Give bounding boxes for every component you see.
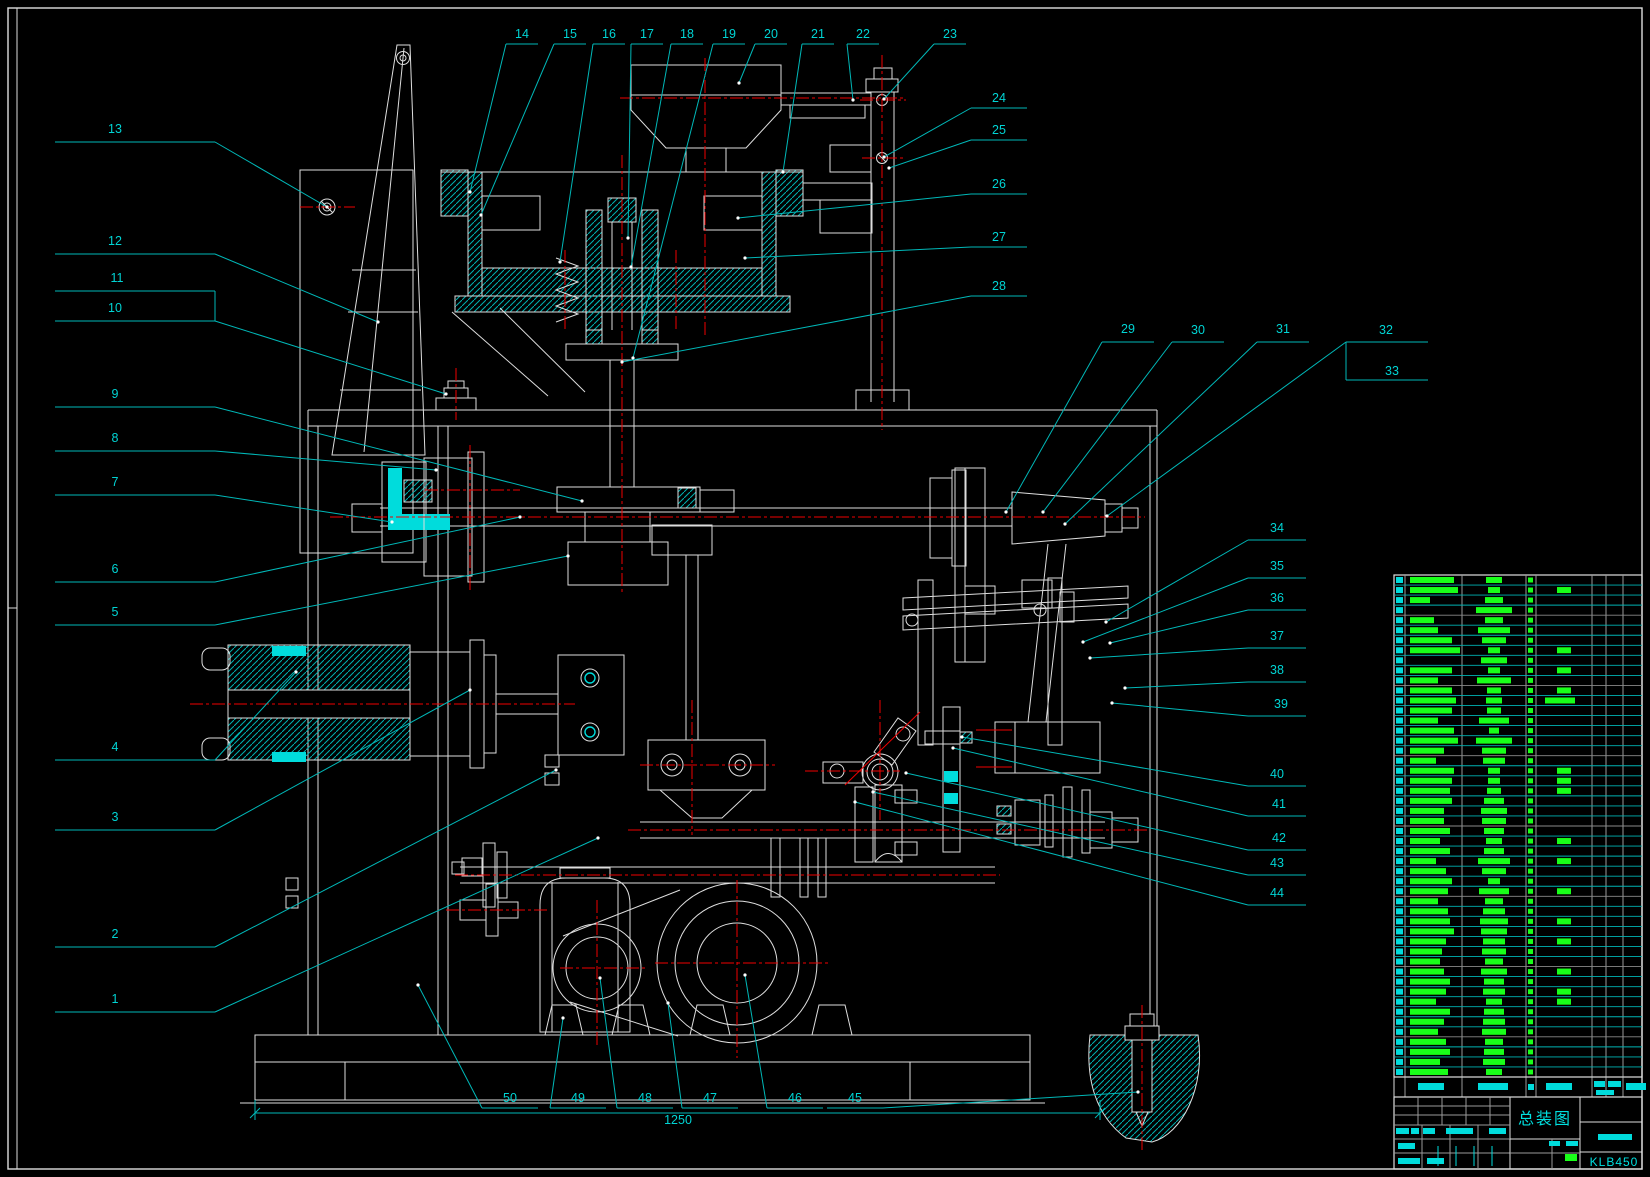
callout-layer: 1234567891011121314151617181920212223242… <box>55 27 1428 1108</box>
table-row-seq <box>1396 918 1403 924</box>
clutch-cylinder <box>202 640 624 936</box>
table-row-qty <box>1528 628 1533 633</box>
table-row-name <box>1410 999 1436 1005</box>
table-row-qty <box>1528 638 1533 643</box>
table-row-seq <box>1396 657 1403 663</box>
table-row-qty <box>1528 798 1533 803</box>
table-row-material <box>1545 697 1575 703</box>
drawing-number: KLB450 <box>1590 1155 1639 1169</box>
table-row-seq <box>1396 597 1403 603</box>
leader-end-dot-26 <box>736 216 739 219</box>
table-row-seq <box>1396 697 1403 703</box>
anchor-bolt <box>1089 1014 1200 1142</box>
table-row-qty <box>1528 748 1533 753</box>
table-row-spec <box>1482 748 1506 754</box>
callout-leader-39 <box>1112 703 1248 716</box>
table-row-material <box>1557 999 1571 1005</box>
table-row-qty <box>1528 598 1533 603</box>
leader-end-dot-16 <box>558 260 561 263</box>
table-row-spec <box>1486 697 1502 703</box>
parts-table <box>1394 575 1646 1097</box>
leader-end-dot-27 <box>743 256 746 259</box>
table-row-name <box>1410 798 1452 804</box>
bowl-feeder <box>441 170 872 487</box>
header-label-bar <box>1418 1083 1444 1090</box>
table-row-spec <box>1486 577 1502 583</box>
table-row-qty <box>1528 969 1533 974</box>
table-row-name <box>1410 969 1444 975</box>
callout-label-46: 46 <box>788 1091 802 1105</box>
callout-label-24: 24 <box>992 91 1006 105</box>
callout-label-12: 12 <box>108 234 122 248</box>
table-row-name <box>1410 597 1430 603</box>
table-row-spec <box>1478 627 1510 633</box>
table-row-material <box>1557 768 1571 774</box>
leader-end-dot-47 <box>666 1001 669 1004</box>
callout-label-50: 50 <box>503 1091 517 1105</box>
leader-end-dot-18 <box>629 265 632 268</box>
table-row-name <box>1410 667 1452 673</box>
callout-leader-10 <box>215 321 446 394</box>
table-row-qty <box>1528 658 1533 663</box>
dimension-1250: 1250 <box>664 1113 692 1127</box>
callout-label-25: 25 <box>992 123 1006 137</box>
callout-label-31: 31 <box>1276 322 1290 336</box>
leader-end-dot-32 <box>1105 514 1108 517</box>
table-row-seq <box>1396 728 1403 734</box>
table-row-material <box>1557 858 1571 864</box>
table-row-spec <box>1477 677 1511 683</box>
table-row-spec <box>1480 918 1508 924</box>
callout-label-22: 22 <box>856 27 870 41</box>
table-row-qty <box>1528 909 1533 914</box>
callout-leader-34 <box>1106 540 1248 622</box>
callout-label-16: 16 <box>602 27 616 41</box>
table-row-seq <box>1396 708 1403 714</box>
callout-leader-22 <box>847 44 853 100</box>
table-row-name <box>1410 848 1450 854</box>
callout-leader-15 <box>481 44 554 215</box>
table-row-qty <box>1528 919 1533 924</box>
table-row-spec <box>1488 768 1500 774</box>
table-row-spec <box>1486 999 1502 1005</box>
callout-label-10: 10 <box>108 301 122 315</box>
table-row-name <box>1410 959 1440 965</box>
table-row-qty <box>1528 578 1533 583</box>
leader-end-dot-22 <box>851 98 854 101</box>
table-row-qty <box>1528 1009 1533 1014</box>
table-row-material <box>1557 989 1571 995</box>
leader-end-dot-6 <box>518 515 521 518</box>
table-row-seq <box>1396 938 1403 944</box>
table-row-qty <box>1528 718 1533 723</box>
callout-label-7: 7 <box>112 475 119 489</box>
table-row-spec <box>1484 1009 1504 1015</box>
callout-label-2: 2 <box>112 927 119 941</box>
table-row-seq <box>1396 969 1403 975</box>
table-row-qty <box>1528 818 1533 823</box>
table-row-name <box>1410 948 1442 954</box>
table-row-name <box>1410 627 1438 633</box>
table-row-spec <box>1484 848 1504 854</box>
table-row-seq <box>1396 768 1403 774</box>
callout-leader-2 <box>215 770 556 947</box>
callout-label-8: 8 <box>112 431 119 445</box>
table-row-name <box>1410 868 1446 874</box>
table-row-spec <box>1485 617 1503 623</box>
table-row-spec <box>1487 687 1501 693</box>
table-row-name <box>1410 687 1452 693</box>
table-row-seq <box>1396 687 1403 693</box>
table-row-qty <box>1528 678 1533 683</box>
table-row-qty <box>1528 989 1533 994</box>
table-row-qty <box>1528 949 1533 954</box>
table-row-spec <box>1481 928 1507 934</box>
callout-label-17: 17 <box>640 27 654 41</box>
table-row-spec <box>1482 948 1506 954</box>
table-row-material <box>1557 918 1571 924</box>
leader-end-dot-4 <box>294 670 297 673</box>
callout-label-6: 6 <box>112 562 119 576</box>
leader-end-dot-45 <box>1136 1090 1139 1093</box>
drive-shaft <box>452 838 995 907</box>
table-row-name <box>1410 1019 1444 1025</box>
callout-leader-48 <box>600 978 617 1108</box>
table-row-material <box>1557 667 1571 673</box>
table-row-name <box>1410 577 1454 583</box>
table-row-seq <box>1396 979 1403 985</box>
leader-end-dot-1 <box>596 836 599 839</box>
table-row-qty <box>1528 859 1533 864</box>
callout-label-4: 4 <box>112 740 119 754</box>
leader-end-dot-23 <box>882 97 885 100</box>
leader-end-dot-25 <box>887 166 890 169</box>
table-row-name <box>1410 979 1450 985</box>
callout-label-13: 13 <box>108 122 122 136</box>
table-row-seq <box>1396 959 1403 965</box>
table-row-name <box>1410 928 1454 934</box>
table-row-qty <box>1528 778 1533 783</box>
callout-leader-40 <box>962 737 1248 786</box>
title-block: 总装图 KLB450 <box>1394 1097 1642 1169</box>
header-label-bar <box>1608 1081 1621 1087</box>
table-row-name <box>1410 878 1452 884</box>
assembly-drawing-sheet: 1250 12345678910111213141516171819202122… <box>0 0 1650 1177</box>
table-row-name <box>1410 1039 1446 1045</box>
table-row-material <box>1557 587 1571 593</box>
table-row-qty <box>1528 668 1533 673</box>
table-row-name <box>1410 768 1454 774</box>
leader-end-dot-38 <box>1123 686 1126 689</box>
callout-label-1: 1 <box>112 992 119 1006</box>
table-row-spec <box>1479 888 1509 894</box>
leader-end-dot-37 <box>1088 656 1091 659</box>
callout-label-11: 11 <box>111 271 124 285</box>
callout-leader-7 <box>215 495 392 522</box>
leader-end-dot-42 <box>904 771 907 774</box>
callout-leader-31 <box>1065 342 1257 524</box>
callout-label-35: 35 <box>1270 559 1284 573</box>
table-row-name <box>1410 888 1448 894</box>
callout-leader-50 <box>418 985 482 1108</box>
callout-label-15: 15 <box>563 27 577 41</box>
table-row-spec <box>1485 898 1503 904</box>
table-row-name <box>1410 647 1460 653</box>
leader-end-dot-5 <box>566 554 569 557</box>
callout-label-45: 45 <box>848 1091 862 1105</box>
cone-pulley-drive <box>955 468 1138 722</box>
table-row-spec <box>1488 878 1500 884</box>
callout-label-47: 47 <box>703 1091 717 1105</box>
callout-label-3: 3 <box>112 810 119 824</box>
table-row-qty <box>1528 879 1533 884</box>
table-row-seq <box>1396 577 1403 583</box>
table-row-qty <box>1528 648 1533 653</box>
table-row-spec <box>1481 808 1507 814</box>
callout-leader-29 <box>1006 342 1102 512</box>
table-row-spec <box>1484 979 1504 985</box>
table-row-name <box>1410 697 1456 703</box>
callout-label-33: 33 <box>1385 364 1399 378</box>
callout-label-37: 37 <box>1270 629 1284 643</box>
title-block-text-bar <box>1598 1134 1632 1140</box>
table-row-qty <box>1528 979 1533 984</box>
table-row-seq <box>1396 1019 1403 1025</box>
cad-viewport: 1250 12345678910111213141516171819202122… <box>0 0 1650 1177</box>
table-row-seq <box>1396 627 1403 633</box>
callout-leader-43 <box>873 792 1248 875</box>
header-label-bar <box>1596 1090 1614 1095</box>
callout-label-14: 14 <box>515 27 529 41</box>
table-row-seq <box>1396 587 1403 593</box>
callout-label-40: 40 <box>1270 767 1284 781</box>
table-row-seq <box>1396 818 1403 824</box>
header-label-bar <box>1546 1083 1572 1090</box>
table-row-seq <box>1396 677 1403 683</box>
header-label-bar <box>1594 1081 1605 1087</box>
table-row-spec <box>1476 607 1512 613</box>
leader-end-dot-20 <box>737 81 740 84</box>
table-row-seq <box>1396 808 1403 814</box>
table-row-spec <box>1485 597 1503 603</box>
callout-label-20: 20 <box>764 27 778 41</box>
table-row-seq <box>1396 1049 1403 1055</box>
table-row-material <box>1557 969 1571 975</box>
table-row-qty <box>1528 889 1533 894</box>
leader-end-dot-31 <box>1063 522 1066 525</box>
callout-leader-36 <box>1110 610 1248 643</box>
leader-end-dot-14 <box>468 190 471 193</box>
centerlines <box>190 55 1150 1150</box>
table-row-name <box>1410 748 1444 754</box>
table-row-material <box>1557 647 1571 653</box>
table-row-seq <box>1396 758 1403 764</box>
table-row-qty <box>1528 1039 1533 1044</box>
table-row-qty <box>1528 939 1533 944</box>
table-row-spec <box>1488 647 1500 653</box>
callout-label-19: 19 <box>722 27 736 41</box>
table-row-spec <box>1488 667 1500 673</box>
table-row-seq <box>1396 878 1403 884</box>
callout-label-48: 48 <box>638 1091 652 1105</box>
pedestal-column <box>300 45 425 553</box>
table-row-spec <box>1481 657 1507 663</box>
callout-label-43: 43 <box>1270 856 1284 870</box>
table-row-seq <box>1396 999 1403 1005</box>
table-row-seq <box>1396 908 1403 914</box>
callout-leader-30 <box>1043 342 1172 512</box>
title-text: 总装图 <box>1518 1110 1572 1128</box>
table-row-material <box>1557 838 1571 844</box>
table-row-name <box>1410 587 1458 593</box>
table-row-name <box>1410 898 1438 904</box>
table-row-seq <box>1396 1029 1403 1035</box>
leader-end-dot-49 <box>561 1016 564 1019</box>
leader-end-dot-39 <box>1110 701 1113 704</box>
table-row-seq <box>1396 798 1403 804</box>
callout-label-29: 29 <box>1121 322 1135 336</box>
table-row-spec <box>1484 1049 1504 1055</box>
callout-leader-38 <box>1125 682 1248 688</box>
table-row-name <box>1410 778 1452 784</box>
table-row-name <box>1410 1059 1440 1065</box>
table-row-seq <box>1396 1039 1403 1045</box>
table-row-name <box>1410 788 1450 794</box>
title-block-text-bar <box>1423 1128 1435 1134</box>
table-row-qty <box>1528 698 1533 703</box>
title-block-text-bar <box>1489 1128 1506 1134</box>
leader-end-dot-43 <box>871 790 874 793</box>
callout-leader-37 <box>1090 648 1248 658</box>
support-post <box>781 68 909 410</box>
table-row-spec <box>1482 1029 1506 1035</box>
table-row-seq <box>1396 647 1403 653</box>
table-row-seq <box>1396 788 1403 794</box>
callout-label-34: 34 <box>1270 521 1284 535</box>
callout-label-21: 21 <box>811 27 825 41</box>
leader-end-dot-36 <box>1108 641 1111 644</box>
title-block-text-bar <box>1549 1141 1560 1146</box>
table-row-seq <box>1396 667 1403 673</box>
callout-label-38: 38 <box>1270 663 1284 677</box>
cam-shaft <box>640 787 1138 857</box>
callout-leader-12 <box>215 254 378 322</box>
table-row-spec <box>1483 1019 1505 1025</box>
table-row-name <box>1410 808 1444 814</box>
table-row-qty <box>1528 618 1533 623</box>
table-row-qty <box>1528 728 1533 733</box>
leader-end-dot-44 <box>853 800 856 803</box>
title-block-text-bar <box>1427 1158 1444 1164</box>
table-row-spec <box>1486 1069 1502 1075</box>
table-row-seq <box>1396 1009 1403 1015</box>
table-row-qty <box>1528 768 1533 773</box>
table-row-spec <box>1479 718 1509 724</box>
leader-end-dot-3 <box>468 688 471 691</box>
table-row-material <box>1557 888 1571 894</box>
title-block-text-bar <box>1566 1141 1578 1146</box>
table-row-spec <box>1488 587 1500 593</box>
table-row-qty <box>1528 929 1533 934</box>
table-row-seq <box>1396 607 1403 613</box>
leader-end-dot-17 <box>626 236 629 239</box>
callout-label-9: 9 <box>112 387 119 401</box>
table-row-qty <box>1528 1059 1533 1064</box>
table-row-name <box>1410 918 1450 924</box>
table-row-name <box>1410 728 1454 734</box>
table-row-seq <box>1396 989 1403 995</box>
table-row-qty <box>1528 829 1533 834</box>
callout-label-36: 36 <box>1270 591 1284 605</box>
callout-label-28: 28 <box>992 279 1006 293</box>
title-block-text-bar <box>1411 1128 1419 1134</box>
table-row-seq <box>1396 898 1403 904</box>
table-row-seq <box>1396 748 1403 754</box>
table-row-name <box>1410 718 1438 724</box>
callout-label-30: 30 <box>1191 323 1205 337</box>
callout-label-32: 32 <box>1379 323 1393 337</box>
table-row-name <box>1410 677 1438 683</box>
callout-label-18: 18 <box>680 27 694 41</box>
leader-end-dot-34 <box>1104 620 1107 623</box>
table-row-name <box>1410 828 1450 834</box>
table-row-spec <box>1487 788 1501 794</box>
table-row-seq <box>1396 778 1403 784</box>
table-row-qty <box>1528 588 1533 593</box>
table-row-seq <box>1396 858 1403 864</box>
table-row-name <box>1410 989 1446 995</box>
leader-end-dot-48 <box>598 976 601 979</box>
table-row-spec <box>1485 1039 1503 1045</box>
table-row-qty <box>1528 688 1533 693</box>
hopper <box>631 65 781 172</box>
callout-label-26: 26 <box>992 177 1006 191</box>
table-row-spec <box>1482 868 1506 874</box>
table-row-seq <box>1396 738 1403 744</box>
leader-end-dot-12 <box>376 320 379 323</box>
title-block-text-bar <box>1398 1143 1415 1149</box>
table-row-material <box>1557 938 1571 944</box>
table-row-qty <box>1528 708 1533 713</box>
callout-leader-21 <box>783 44 802 172</box>
title-block-text-bar <box>1446 1128 1473 1134</box>
table-row-seq <box>1396 948 1403 954</box>
table-row-seq <box>1396 828 1403 834</box>
table-row-spec <box>1483 908 1505 914</box>
table-row-qty <box>1528 758 1533 763</box>
bottom-dimension: 1250 <box>250 1100 1105 1127</box>
callout-label-42: 42 <box>1272 831 1286 845</box>
leader-end-dot-2 <box>554 768 557 771</box>
table-row-qty <box>1528 1029 1533 1034</box>
table-row-qty <box>1528 1069 1533 1074</box>
table-row-spec <box>1483 938 1505 944</box>
connecting-rod <box>648 525 765 818</box>
table-row-name <box>1410 758 1436 764</box>
table-row-spec <box>1484 798 1504 804</box>
table-row-name <box>1410 938 1446 944</box>
table-row-spec <box>1484 828 1504 834</box>
table-row-qty <box>1528 839 1533 844</box>
leader-end-dot-29 <box>1004 510 1007 513</box>
table-row-name <box>1410 1029 1438 1035</box>
callout-label-49: 49 <box>571 1091 585 1105</box>
leader-end-dot-41 <box>951 746 954 749</box>
callout-leader-6 <box>215 517 520 582</box>
table-row-qty <box>1528 788 1533 793</box>
table-row-material <box>1557 687 1571 693</box>
title-block-green-bar <box>1565 1154 1577 1161</box>
